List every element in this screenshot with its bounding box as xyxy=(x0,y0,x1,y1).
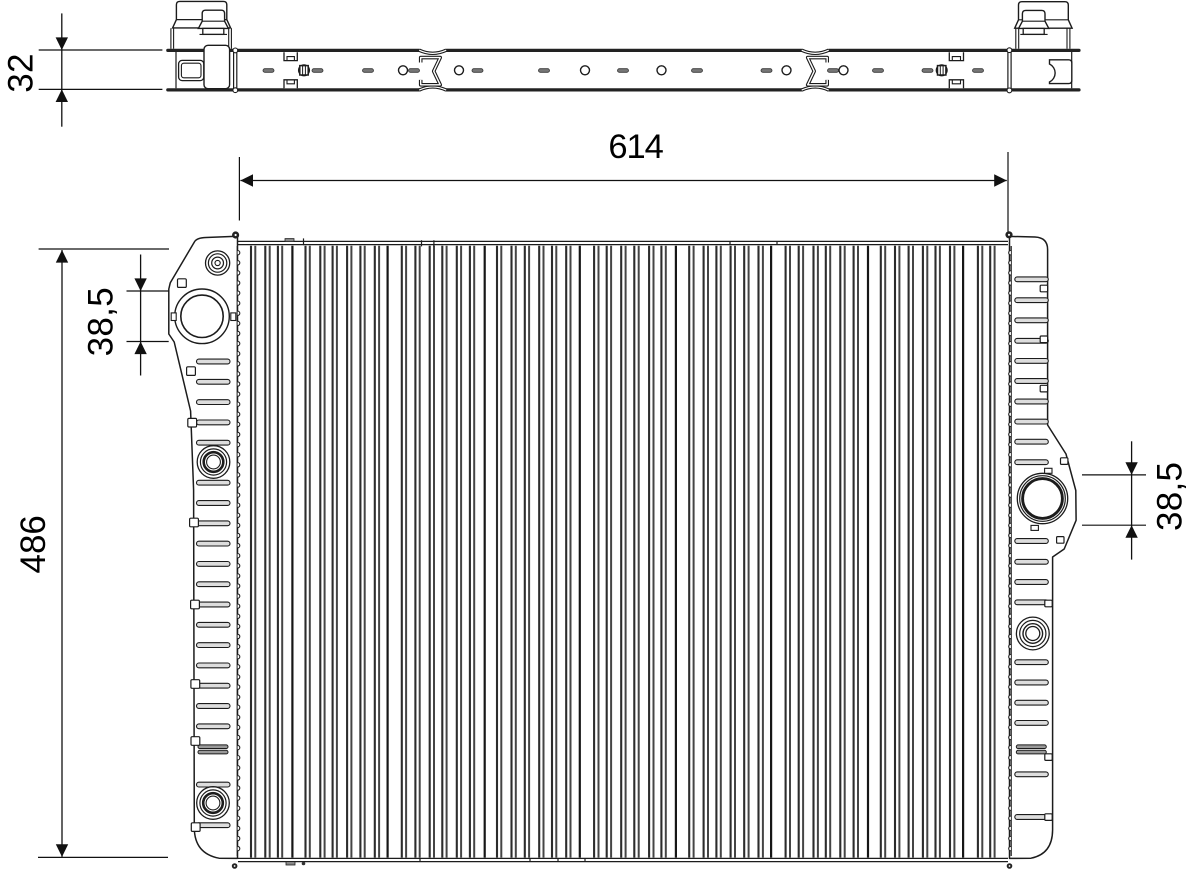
svg-text:32: 32 xyxy=(2,53,41,93)
svg-text:38,5: 38,5 xyxy=(82,287,121,356)
svg-text:614: 614 xyxy=(608,128,663,166)
svg-text:486: 486 xyxy=(14,515,53,573)
svg-text:38,5: 38,5 xyxy=(1151,462,1190,531)
